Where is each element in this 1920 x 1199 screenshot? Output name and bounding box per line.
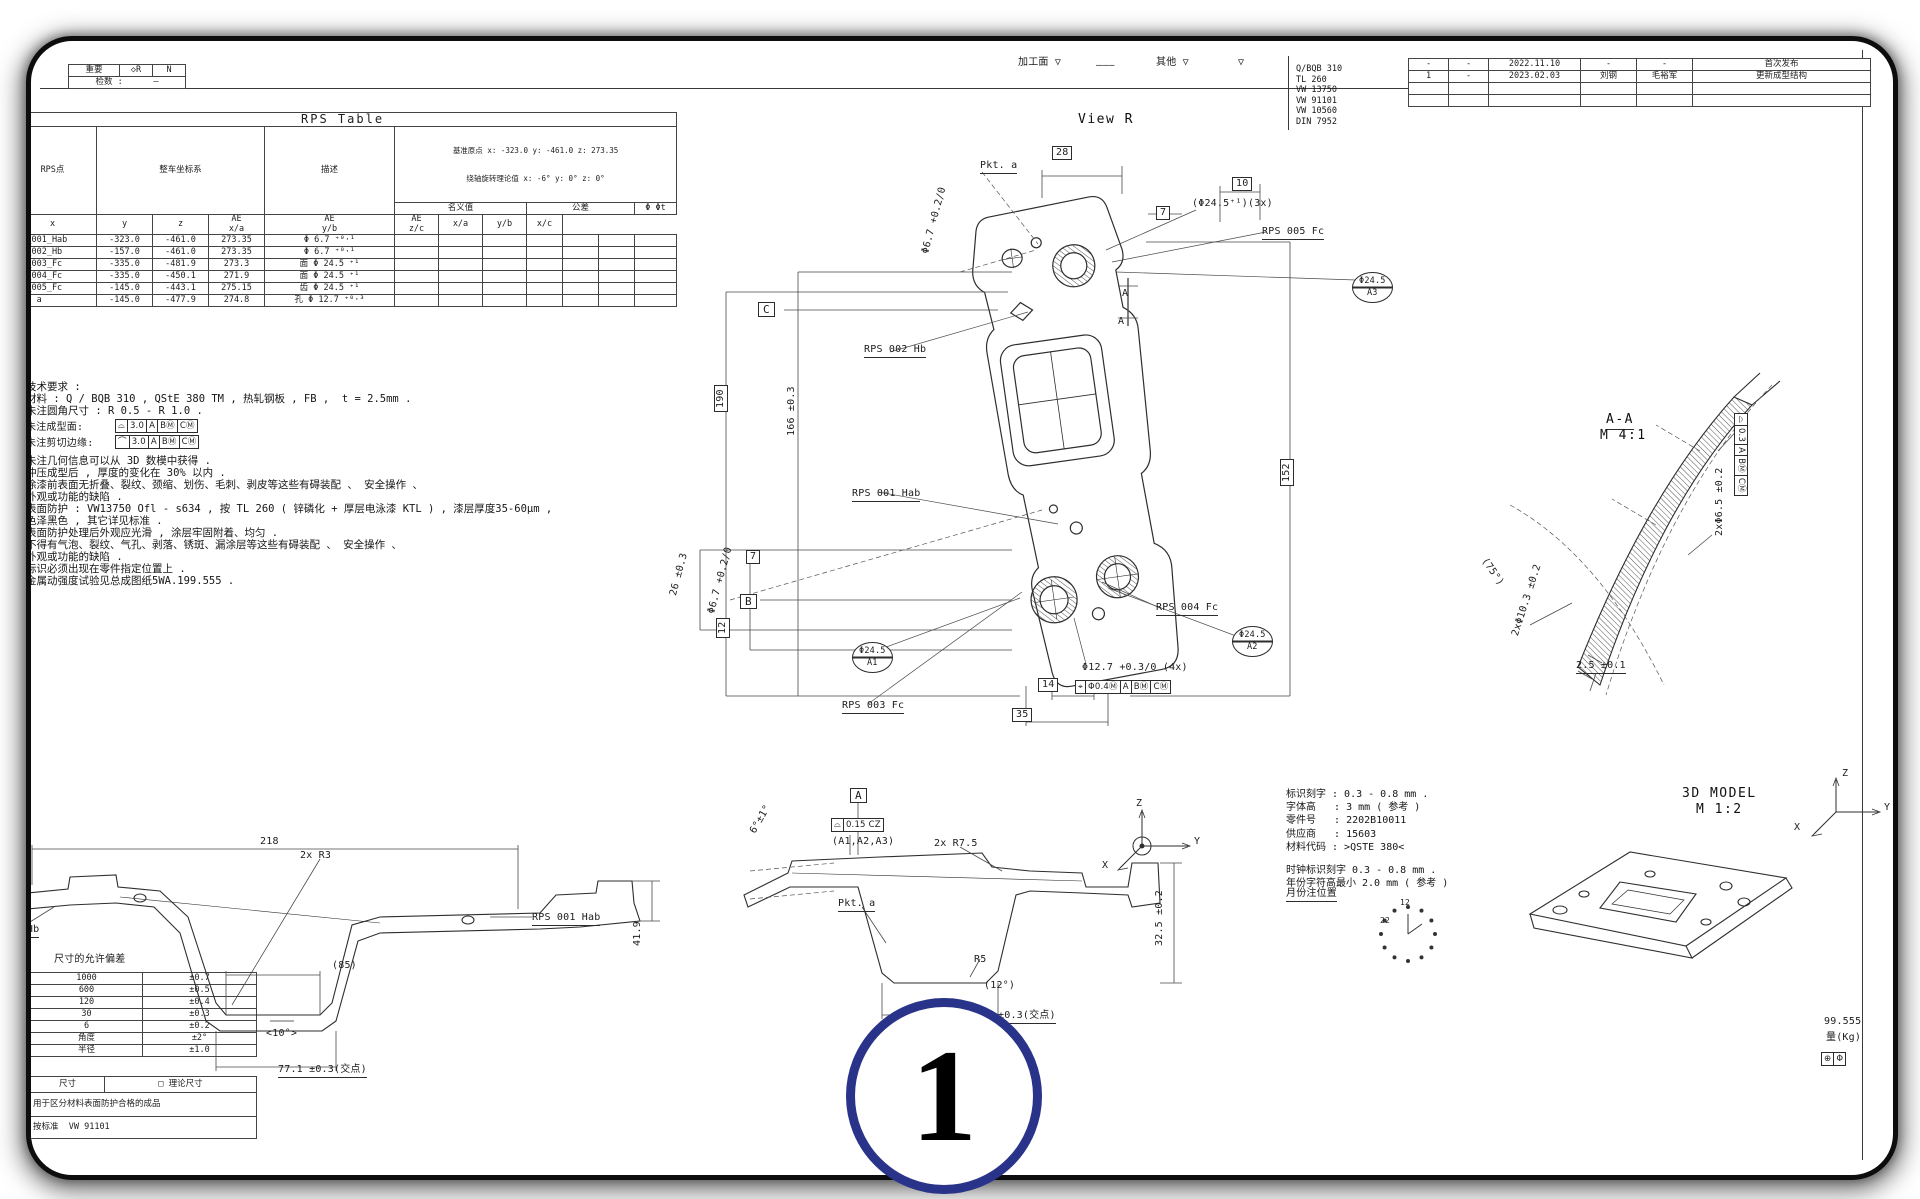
axis-y-3d: Y: [1884, 802, 1890, 814]
balloon-a2: Φ24.5 A2: [1232, 626, 1273, 657]
dim-7-mid: 7: [746, 550, 760, 564]
balloon-a1: Φ24.5 A1: [852, 642, 893, 673]
fcf-aa: ⌓0.3ABⓂCⓂ: [1734, 414, 1748, 496]
weight-value: 99.555: [1824, 1016, 1861, 1028]
label-rps-002: RPS 002 Hb: [864, 344, 926, 358]
dim-2x-dia6-5: 2xΦ6.5 ±0.2: [1714, 468, 1726, 536]
label-002-hb: 002 Hb: [26, 924, 39, 938]
scale-3d-model: M 1:2: [1696, 802, 1743, 818]
datum-b: B: [740, 594, 757, 609]
label-pkt-a-2: Pkt. a: [838, 898, 875, 912]
dim-12deg: (12°): [984, 980, 1015, 992]
datum-a: A: [850, 788, 867, 803]
dim-77-1: 77.1 ±0.3(交点): [278, 1064, 367, 1078]
label-month-position: 月份注位置: [1286, 888, 1337, 902]
mark-dash: ———: [1096, 60, 1115, 72]
weight-label: 量(Kg): [1826, 1032, 1861, 1044]
dim-85: (85): [332, 960, 357, 972]
mark-other-triangle: ▽: [1238, 57, 1244, 69]
corner-symbols: ⊕Φ: [1822, 1052, 1846, 1066]
dim-35: 35: [1012, 708, 1032, 722]
section-a-bot: A: [1118, 316, 1124, 328]
dim-14: 14: [1038, 678, 1058, 692]
fcf-position: ⌖Φ0.4ⓂABⓂCⓂ: [1076, 680, 1171, 694]
label-dia24-5-3x: (Φ24.5⁺¹)(3x): [1192, 198, 1273, 210]
page-number-marker: 1: [846, 998, 1042, 1194]
dim-32-5: 32.5 ±0.2: [1154, 890, 1166, 946]
balloon-a3: Φ24.5 A3: [1352, 272, 1393, 303]
axis-x: X: [1102, 860, 1108, 872]
datum-c: C: [758, 302, 775, 317]
dim-41-9: 41.9: [632, 921, 644, 946]
dim-12: 12: [716, 618, 730, 638]
clock-22: 22: [1380, 916, 1390, 926]
dim-7-top: 7: [1156, 206, 1170, 220]
dim-dia6-7-top: Φ6.7 +0.2/0: [920, 186, 949, 255]
page-number: 1: [911, 1030, 977, 1162]
dim-26: 26 ±0.3: [668, 552, 691, 597]
dim-2x-dia10-3: 2xΦ10.3 ±0.2: [1510, 563, 1544, 638]
label-pkt-a: Pkt. a: [980, 160, 1017, 174]
section-aa-title: A-A: [1606, 412, 1634, 430]
dim-28: 28: [1052, 146, 1072, 160]
dim-218: 218: [260, 836, 279, 848]
dim-dia6-7-mid: Φ6.7 +0.2/0: [706, 546, 735, 615]
axis-z: Z: [1136, 798, 1142, 810]
label-rps-003: RPS 003 Fc: [842, 700, 904, 714]
dim-152: 152: [1280, 459, 1294, 486]
title-3d-model: 3D MODEL: [1682, 786, 1757, 802]
dim-10: 10: [1232, 177, 1252, 191]
tol-table-title: 尺寸的允许偏差: [54, 954, 125, 966]
clock-12: 12: [1400, 898, 1410, 908]
section-a-top: A: [1122, 288, 1128, 300]
label-rps-005: RPS 005 Fc: [1262, 226, 1324, 240]
label-fcf-datums: (A1,A2,A3): [832, 836, 894, 848]
view-r-title: View R: [1078, 112, 1134, 128]
dim-2x-r3: 2x R3: [300, 850, 331, 862]
dim-r5: R5: [974, 954, 986, 966]
dim-dia12-7: Φ12.7 +0.3/0 (4x): [1082, 662, 1188, 674]
dim-10deg: <10°>: [266, 1028, 297, 1040]
dim-190: 190: [714, 385, 728, 412]
section-aa-scale: M 4:1: [1600, 428, 1647, 444]
dim-166: 166 ±0.3: [786, 386, 798, 436]
label-rps-001: RPS 001 Hab: [852, 488, 920, 502]
mark-other: 其他 ▽: [1156, 57, 1189, 69]
dim-2x-r7-5: 2x R7.5: [934, 838, 978, 850]
axis-x-3d: X: [1794, 822, 1800, 834]
mark-stamped-face: 加工面 ▽: [1018, 57, 1061, 69]
dim-75deg: (75°): [1478, 556, 1506, 588]
axis-y: Y: [1194, 836, 1200, 848]
axis-z-3d: Z: [1842, 768, 1848, 780]
label-rps-001-bl: RPS 001 Hab: [532, 912, 600, 926]
engineering-drawing-page: { "page": { "big_marker": "1" }, "top_le…: [0, 0, 1920, 1199]
label-rps-004: RPS 004 Fc: [1156, 602, 1218, 616]
dim-6deg: 6°±1°: [748, 803, 774, 836]
dim-2-5: 2.5 ±0.1: [1576, 660, 1626, 674]
fcf-profile: ⌓0.15 CZ: [832, 818, 884, 832]
